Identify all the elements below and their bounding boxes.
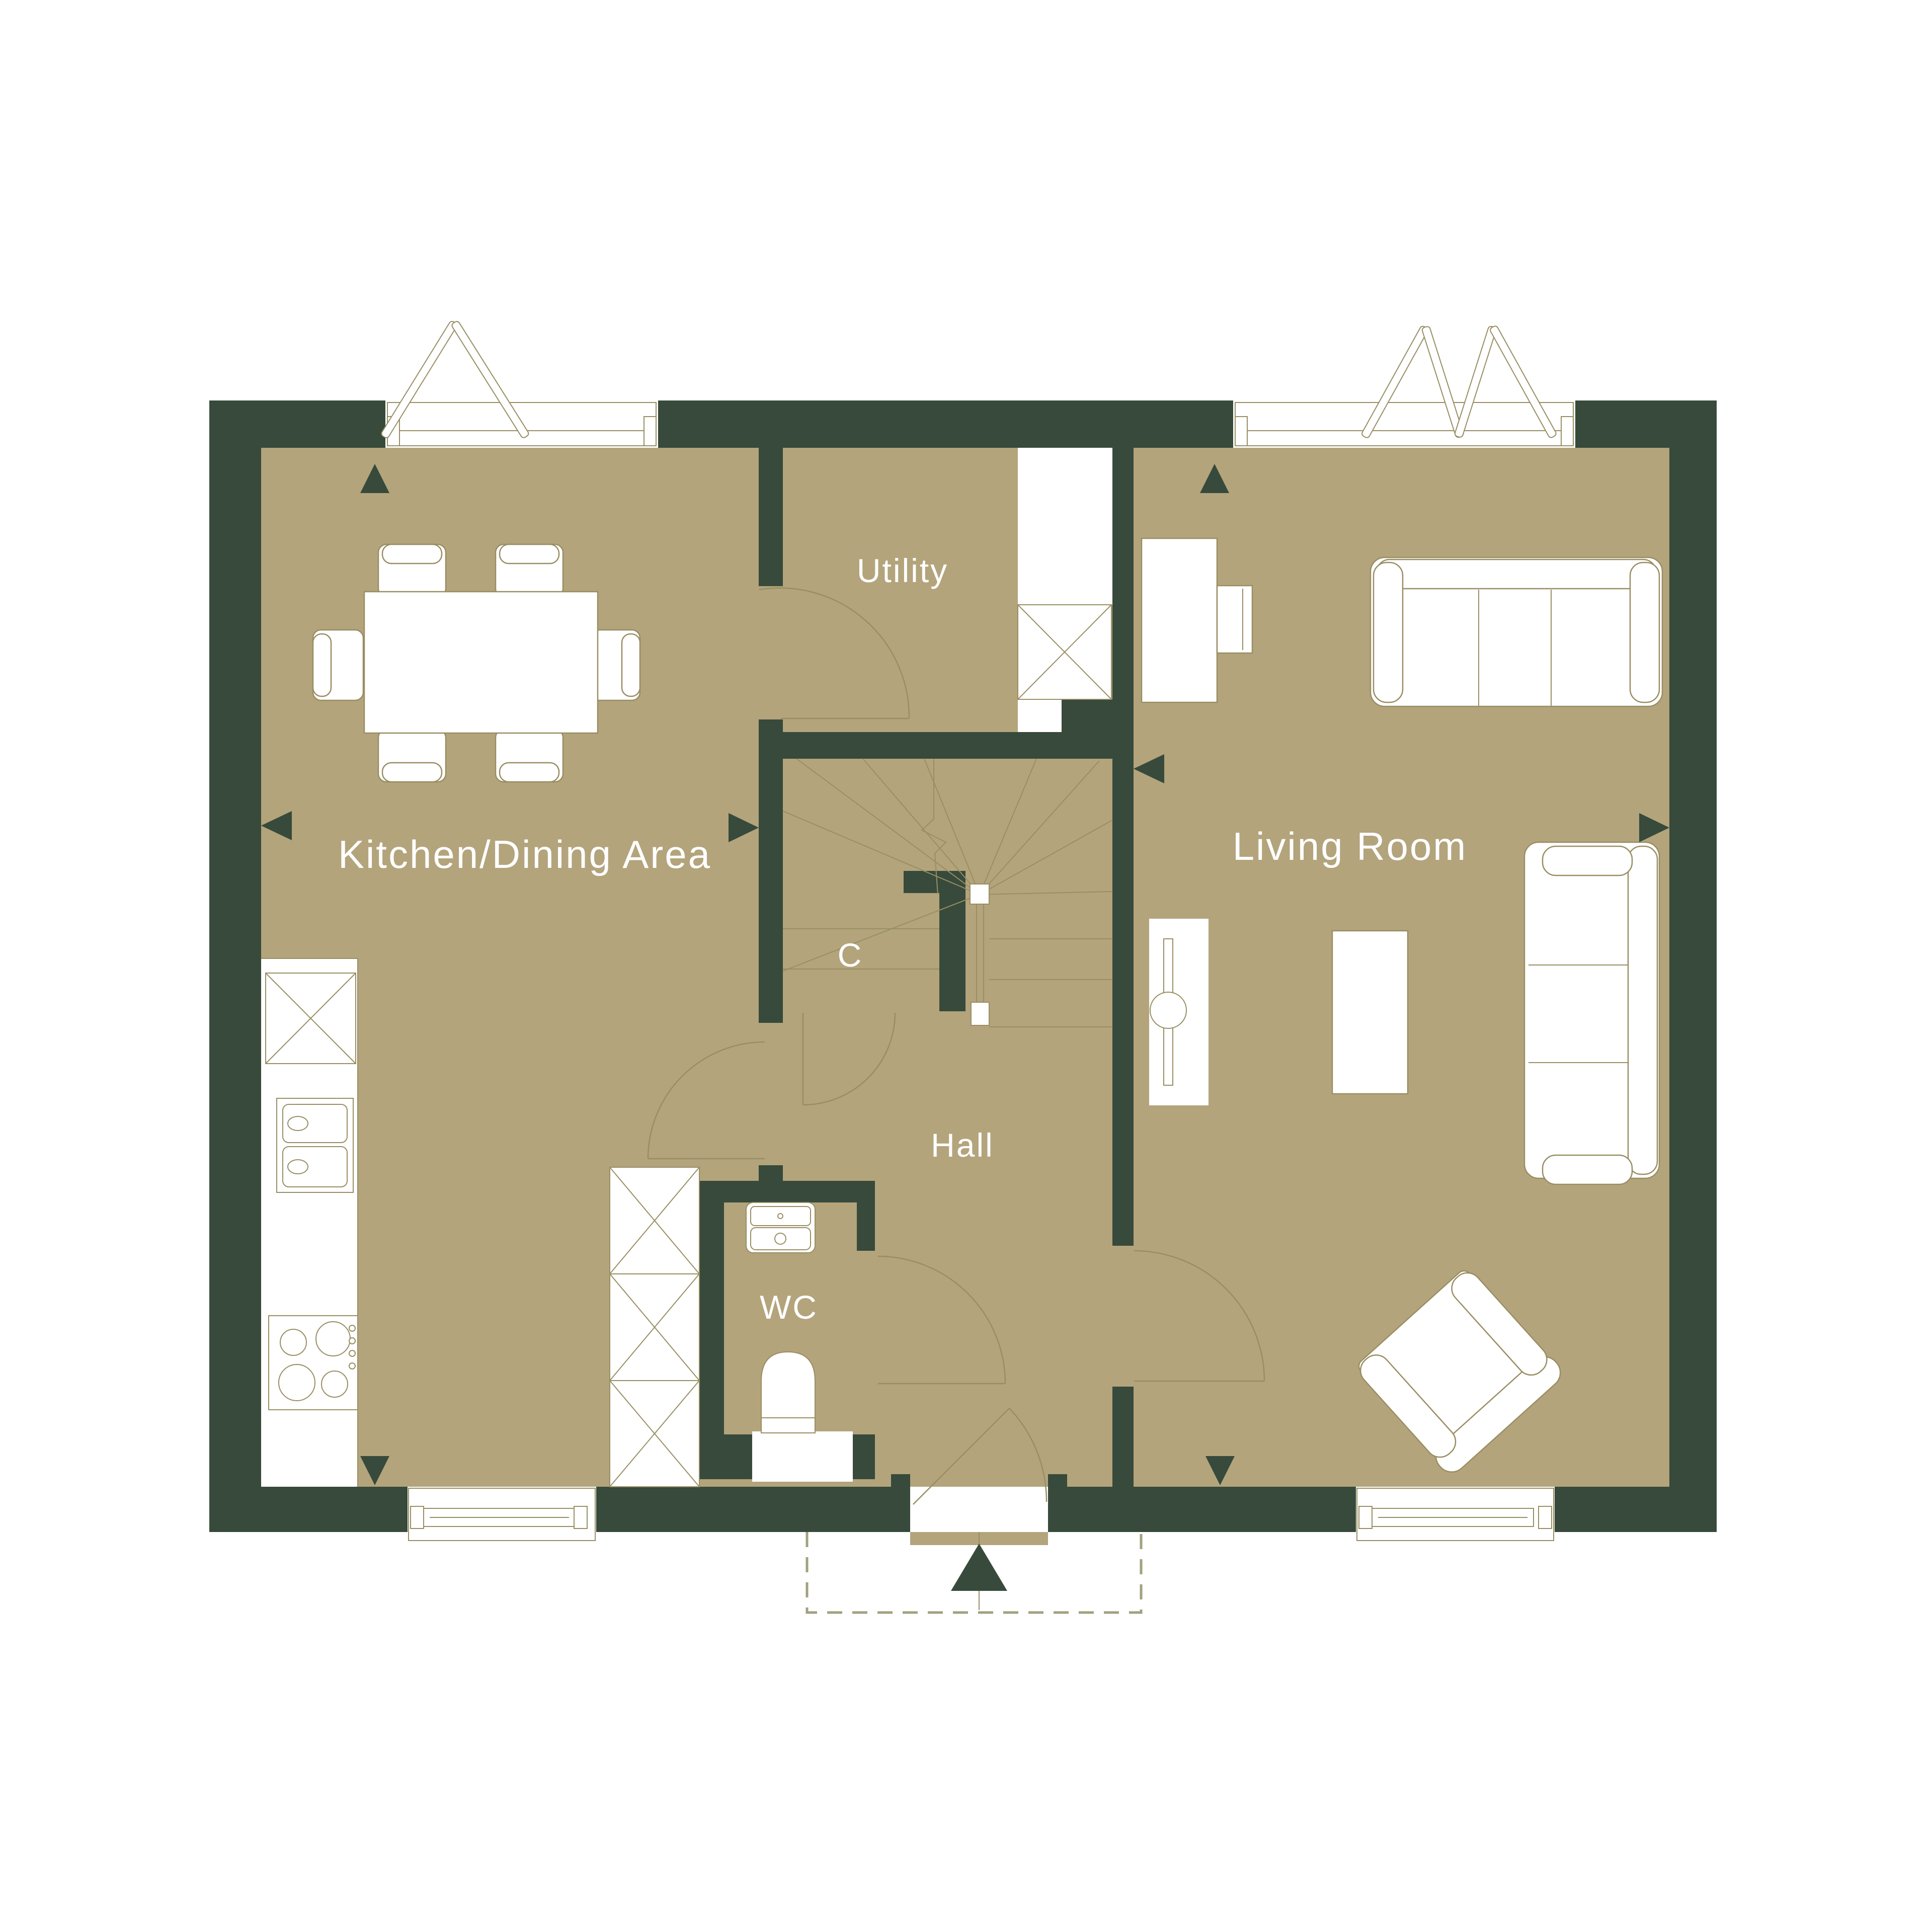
coffee-table: [1332, 931, 1408, 1094]
room-label-kitchen: Kitchen/Dining Area: [338, 832, 711, 876]
basin: [746, 1202, 815, 1253]
desk-chair: [1217, 586, 1252, 653]
hob: [269, 1316, 358, 1410]
washing-machine: [1018, 605, 1111, 699]
tall-storage-cupboard: [610, 1167, 699, 1487]
window-top-left: [380, 320, 658, 448]
room-label-living: Living Room: [1233, 824, 1468, 868]
dining-chair: [313, 630, 363, 700]
room-label-utility: Utility: [857, 552, 948, 589]
room-label-cupboard: C: [838, 936, 863, 974]
dining-chair: [378, 730, 446, 782]
sofa-three-seat: [1371, 557, 1662, 706]
newel-post: [970, 884, 989, 904]
dining-table: [364, 592, 598, 733]
floor-plan-svg: Kitchen/Dining Area Utility Living Room …: [0, 0, 1932, 1932]
fridge-freezer-unit: [266, 973, 356, 1064]
sofa-two-seat: [1524, 842, 1659, 1184]
dining-chair: [378, 544, 446, 597]
window-top-right: [1233, 325, 1575, 448]
double-sink: [277, 1098, 353, 1192]
room-label-hall: Hall: [931, 1126, 994, 1164]
newel-post: [971, 1002, 989, 1025]
radiator: [1149, 919, 1209, 1105]
floor-plan: Kitchen/Dining Area Utility Living Room …: [0, 0, 1932, 1932]
room-label-wc: WC: [760, 1289, 818, 1326]
dining-chair: [496, 730, 563, 782]
entrance-arrow-icon: [951, 1544, 1007, 1591]
dining-chair: [496, 544, 563, 597]
cistern: [752, 1431, 853, 1482]
window-bottom-right: [1357, 1488, 1554, 1541]
window-bottom-left: [409, 1488, 595, 1541]
